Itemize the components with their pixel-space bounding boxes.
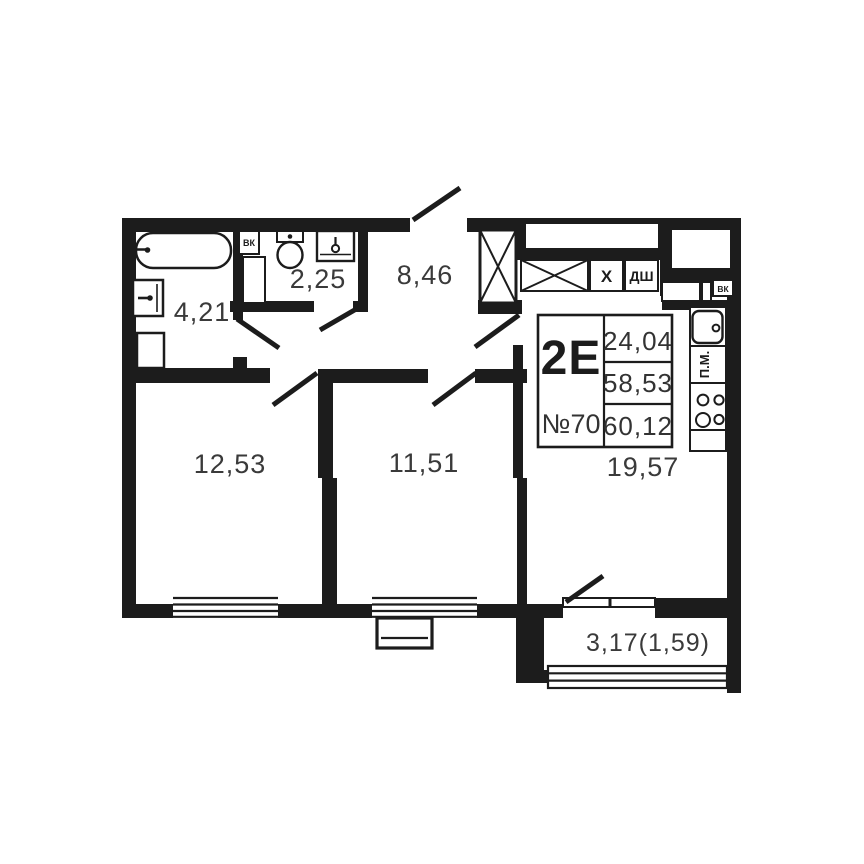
wall-bottom-2 xyxy=(278,604,372,618)
wall-corridor-band-1 xyxy=(122,368,270,383)
kitchen-fixtures: П.М. xyxy=(690,307,726,451)
balcony-area-label: 3,17(1,59) xyxy=(586,629,710,657)
bathroom-door-leaf xyxy=(237,319,279,348)
kitchen-wardrobe-crossed xyxy=(521,260,588,291)
wall-top-left xyxy=(122,218,410,232)
balcony-glazing xyxy=(548,666,727,688)
window-bedroom-2 xyxy=(372,597,477,618)
bedroom-1-door-leaf xyxy=(273,373,317,405)
unit-number: №70 xyxy=(542,409,601,439)
vent-box-x: Х xyxy=(590,260,623,291)
kitchen-sink xyxy=(693,311,723,343)
wall-bedrooms-lower xyxy=(322,478,337,604)
washing-machine xyxy=(137,333,164,368)
balcony-door-sill xyxy=(563,597,655,608)
toilet-bowl xyxy=(277,231,303,268)
wall-bedrooms-upper xyxy=(318,383,333,478)
kitchen-vk-label: ВК xyxy=(717,284,729,294)
unit-living-area: 24,04 xyxy=(603,326,673,356)
toilet-door-leaf xyxy=(320,308,358,330)
window-sill-box xyxy=(377,618,432,648)
wall-living-lower xyxy=(517,478,527,617)
wall-kitchen-jamb xyxy=(513,345,523,383)
kitchen-counter-box xyxy=(662,282,700,301)
entrance-door-leaf xyxy=(413,188,460,220)
wall-right xyxy=(727,296,741,693)
toilet-fixtures xyxy=(277,231,354,268)
niche-kitchen-top xyxy=(526,224,658,248)
wall-balcony-stub xyxy=(655,598,727,618)
wall-living-upper xyxy=(513,383,523,478)
bedroom-1-area-label: 12,53 xyxy=(194,449,267,479)
toilet-area-label: 2,25 xyxy=(290,264,347,294)
wall-corridor-band-2 xyxy=(318,369,428,383)
floor-plan-svg: Х ДШ ВК ВК xyxy=(0,0,864,864)
kitchen-counter-box-narrow xyxy=(702,282,711,301)
unit-area-no-balcony: 58,53 xyxy=(603,368,673,398)
wall-toilet-right xyxy=(358,232,368,312)
washbasin-tap-dot xyxy=(147,295,153,301)
washbasin xyxy=(133,280,163,316)
bathroom-area-label: 4,21 xyxy=(174,297,231,327)
bathroom-vk-duct: ВК xyxy=(239,231,259,254)
floor-plan-page: Х ДШ ВК ВК xyxy=(0,0,864,864)
drain-shaft-label: ДШ xyxy=(629,268,653,284)
kitchen-door-leaf xyxy=(475,315,519,347)
unit-total-area: 60,12 xyxy=(603,411,673,441)
wall-bath-door-stub xyxy=(233,357,247,369)
hallway-area-label: 8,46 xyxy=(397,260,454,290)
niche-corner-shaft xyxy=(672,230,730,268)
kitchen-vk-duct: ВК xyxy=(713,280,733,296)
plumbing-duct-box xyxy=(243,257,265,303)
bedroom-2-area-label: 11,51 xyxy=(389,448,460,478)
vent-box-label: Х xyxy=(601,267,613,286)
wall-balcony-left xyxy=(516,617,544,683)
dishwasher-label: П.М. xyxy=(697,351,712,378)
wall-bottom-1 xyxy=(122,604,173,618)
drain-shaft-box: ДШ xyxy=(625,260,658,291)
bathroom-vk-label: ВК xyxy=(243,238,255,248)
unit-info-card: 2Е №70 24,04 58,53 60,12 xyxy=(538,315,673,447)
bedroom-2-door-leaf xyxy=(433,373,476,405)
unit-type-label: 2Е xyxy=(541,332,602,385)
hall-shaft-crossed xyxy=(480,230,516,303)
kitchen-living-area-label: 19,57 xyxy=(607,452,680,482)
toilet-washbasin xyxy=(317,231,354,261)
window-bedroom-1 xyxy=(173,597,278,618)
